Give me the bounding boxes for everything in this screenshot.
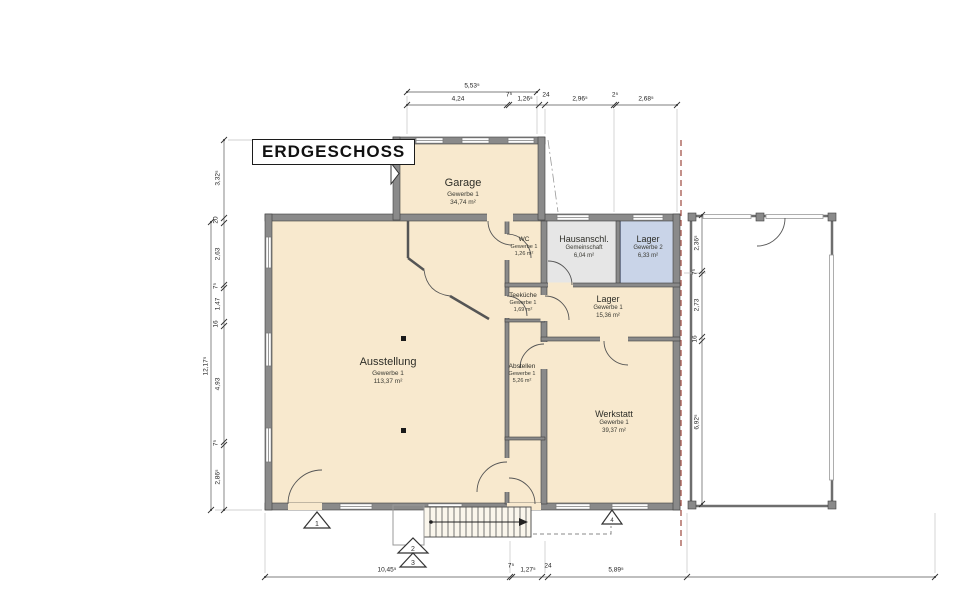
dim-top-6: 2⁵ xyxy=(612,92,618,99)
stairs-landing xyxy=(393,505,424,545)
dim-left-3: 2,63 xyxy=(215,248,222,261)
floor-plan-drawing: 1 2 3 4 xyxy=(0,0,960,599)
dim-left-7: 4,93 xyxy=(215,378,222,391)
dim-right-4: 16 xyxy=(692,335,699,342)
svg-text:1: 1 xyxy=(315,521,319,528)
dim-left-overall: 12,17⁵ xyxy=(203,357,210,376)
dim-left-2: 20 xyxy=(213,216,220,223)
dim-top-4: 24 xyxy=(542,92,549,99)
room-label-abstellen: AbstellenGewerbe 15,26 m² xyxy=(509,363,536,385)
dim-right-5: 6,92⁵ xyxy=(694,414,701,429)
svg-text:2: 2 xyxy=(411,546,415,553)
dim-bottom-4: 24 xyxy=(544,563,551,570)
dim-left-4: 7⁵ xyxy=(213,283,220,289)
dim-left-5: 1,47 xyxy=(215,298,222,311)
dim-bottom-1: 10,45⁵ xyxy=(378,567,397,574)
dim-top-overall: 5,53⁵ xyxy=(464,83,479,90)
dim-right-3: 2,73 xyxy=(694,299,701,312)
room-label-hausanschluss: Hausanschl.Gemeinschaft6,04 m² xyxy=(559,234,609,260)
room-label-lager-gewerbe1: LagerGewerbe 115,36 m² xyxy=(593,294,622,320)
dim-top-5: 2,96⁵ xyxy=(572,96,587,103)
dim-top-7: 2,68⁵ xyxy=(638,96,653,103)
room-label-wc: WCGewerbe 11,26 m² xyxy=(511,236,538,258)
page-title: ERDGESCHOSS xyxy=(252,139,415,165)
dim-top-3: 1,26⁵ xyxy=(517,96,532,103)
dim-bottom-5: 5,89⁵ xyxy=(608,567,623,574)
dim-left-1: 3,32⁵ xyxy=(215,170,222,185)
boundary-line xyxy=(548,140,558,212)
dim-top-1: 4,24 xyxy=(452,96,465,103)
dim-left-9: 2,86⁵ xyxy=(215,469,222,484)
dim-right-1: 2,36⁵ xyxy=(694,235,701,250)
room-label-garage: GarageGewerbe 134,74 m² xyxy=(445,177,482,207)
dim-left-8: 7⁵ xyxy=(213,440,220,446)
room-label-werkstatt: WerkstattGewerbe 139,37 m² xyxy=(595,409,633,435)
dim-bottom-2: 7⁵ xyxy=(508,563,514,570)
dim-bottom-3: 1,27⁵ xyxy=(520,567,535,574)
dim-right-2: 7⁵ xyxy=(692,269,699,275)
dim-top-2: 7⁵ xyxy=(506,92,512,99)
svg-text:3: 3 xyxy=(411,560,415,567)
room-label-ausstellung: AusstellungGewerbe 1113,37 m² xyxy=(360,356,417,386)
entry-path xyxy=(533,526,611,534)
room-label-teekueche: TeekücheGewerbe 11,69 m² xyxy=(509,292,537,314)
floor-plan-page: 1 2 3 4 xyxy=(0,0,960,599)
annex xyxy=(688,213,836,509)
room-label-lager-gewerbe2: LagerGewerbe 26,33 m² xyxy=(633,234,662,260)
dim-left-6: 16 xyxy=(213,320,220,327)
